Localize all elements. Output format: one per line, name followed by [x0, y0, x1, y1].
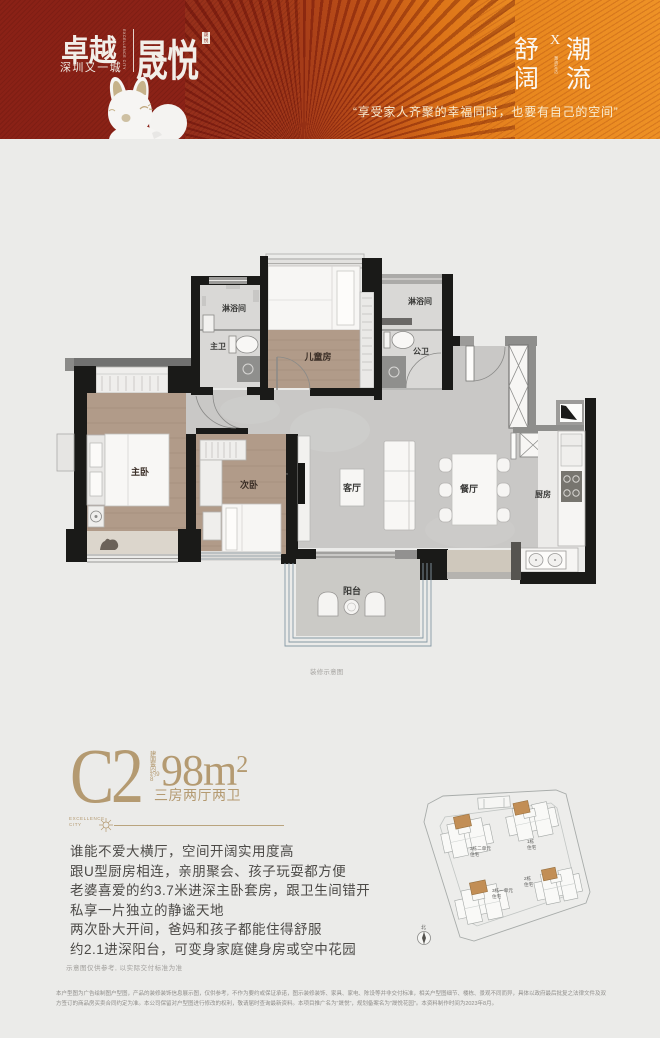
- svg-text:住宅: 住宅: [470, 851, 480, 857]
- svg-text:住宅: 住宅: [527, 844, 537, 850]
- svg-text:主卧: 主卧: [131, 466, 149, 477]
- svg-text:次卧: 次卧: [240, 479, 258, 490]
- svg-text:3栋二单元: 3栋二单元: [470, 845, 491, 852]
- svg-text:公卫: 公卫: [413, 347, 429, 356]
- svg-text:淋浴间: 淋浴间: [222, 303, 246, 313]
- svg-text:3栋一单元: 3栋一单元: [492, 887, 513, 894]
- svg-text:阳台: 阳台: [343, 585, 361, 596]
- svg-text:餐厅: 餐厅: [459, 483, 478, 494]
- svg-text:1栋: 1栋: [527, 838, 535, 845]
- svg-text:北: 北: [421, 924, 426, 931]
- svg-text:厨房: 厨房: [535, 489, 551, 499]
- svg-text:2栋: 2栋: [524, 875, 532, 882]
- svg-text:住宅: 住宅: [492, 893, 502, 899]
- svg-text:主卫: 主卫: [210, 341, 226, 351]
- svg-text:住宅: 住宅: [524, 881, 534, 887]
- svg-text:客厅: 客厅: [342, 482, 361, 493]
- svg-text:儿童房: 儿童房: [303, 351, 331, 362]
- svg-text:淋浴间: 淋浴间: [408, 296, 432, 306]
